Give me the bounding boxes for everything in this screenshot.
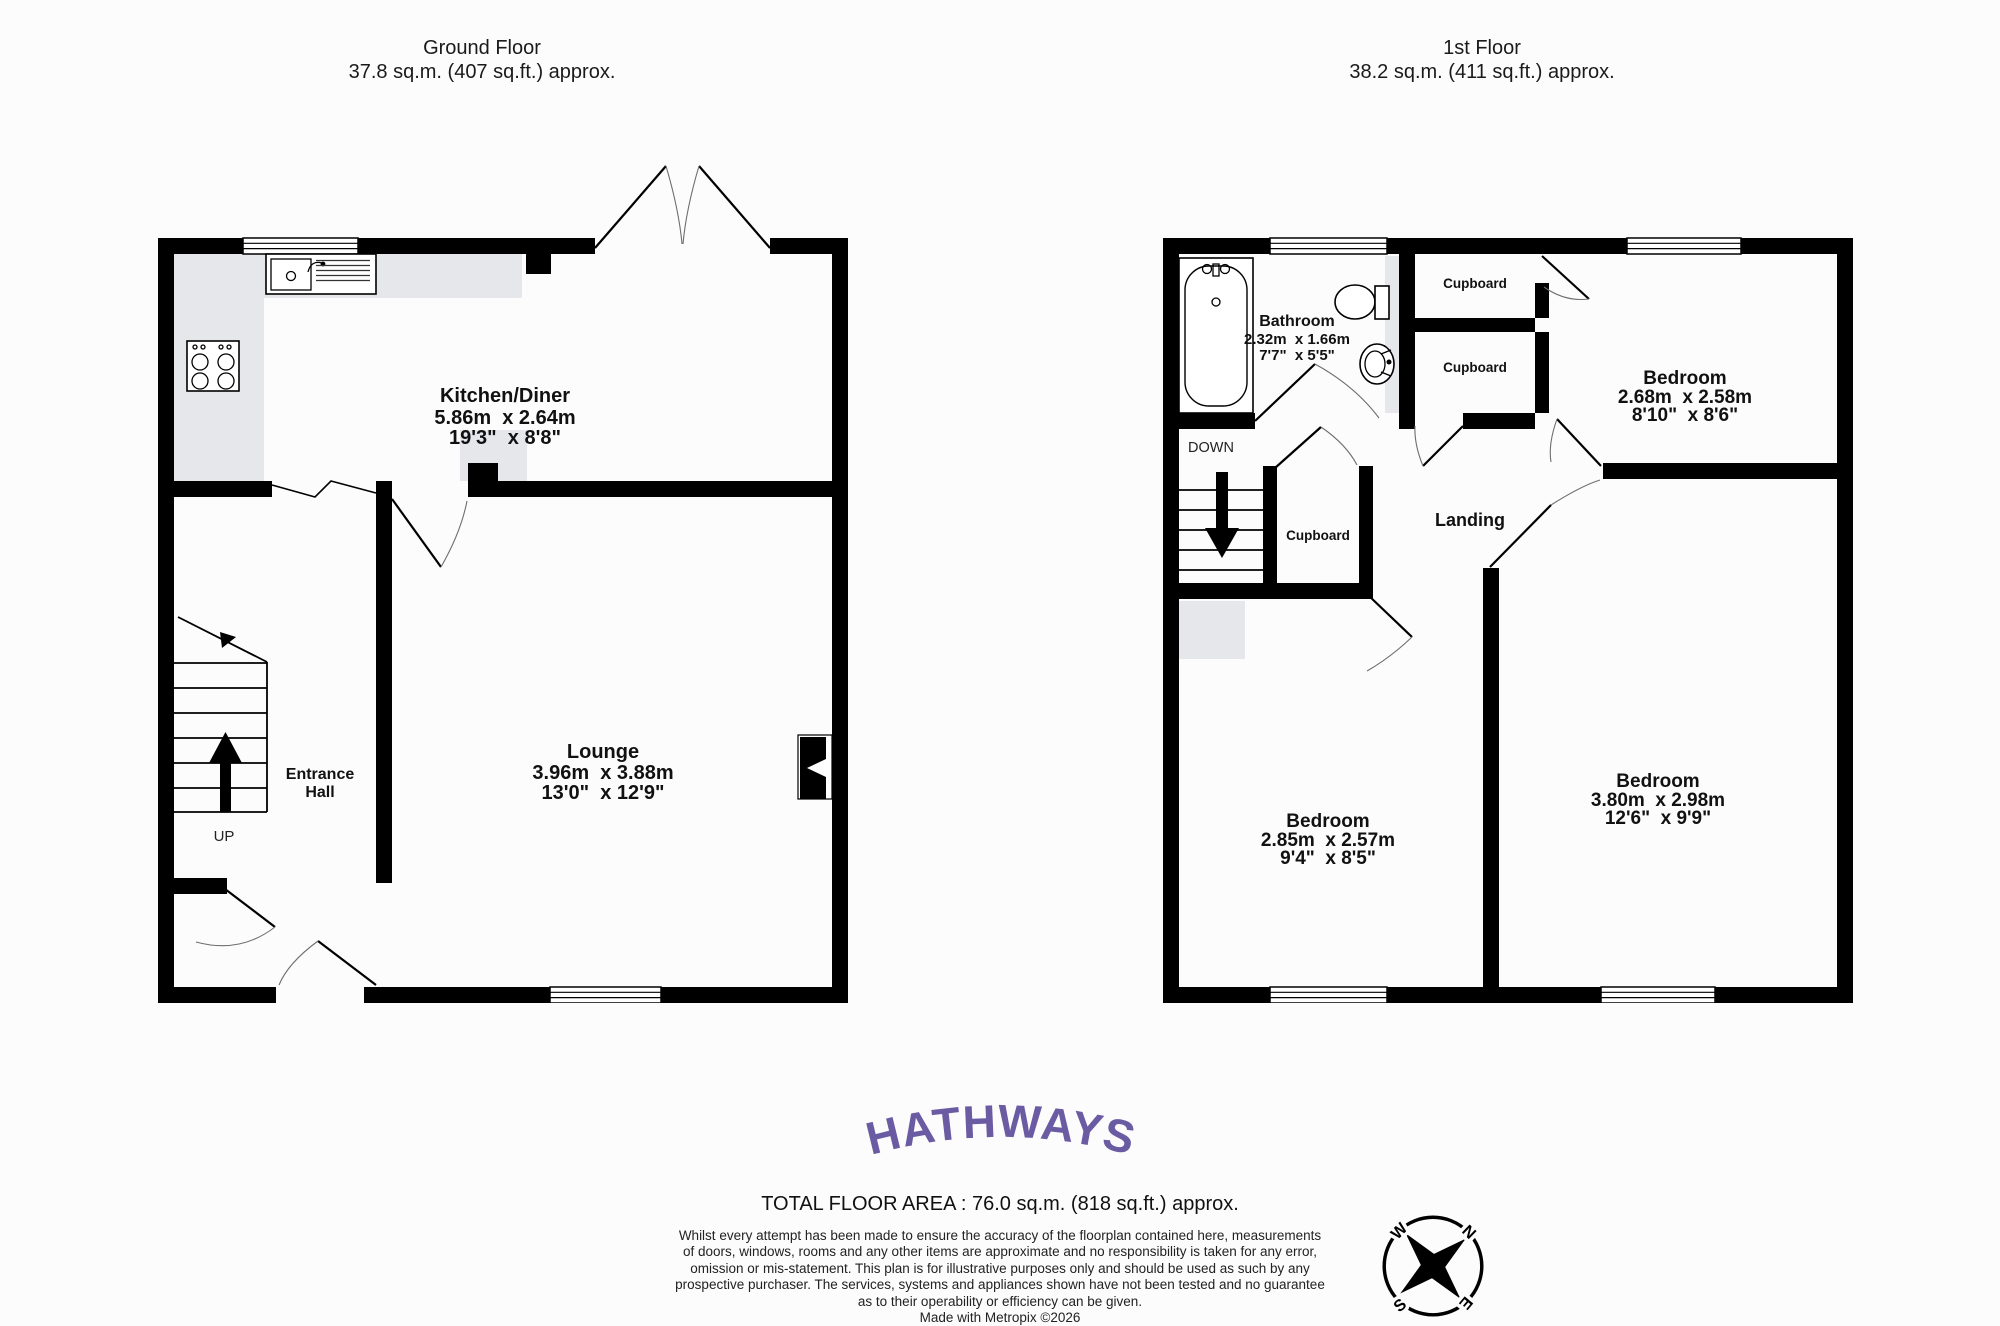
compass-icon: N E S W bbox=[1372, 1202, 1494, 1326]
svg-text:12'6" x 9'9": 12'6" x 9'9" bbox=[1605, 808, 1711, 829]
ground-floor-title: Ground Floor bbox=[262, 36, 702, 60]
total-floor-area: TOTAL FLOOR AREA : 76.0 sq.m. (818 sq.ft… bbox=[600, 1192, 1400, 1216]
svg-text:Lounge: Lounge bbox=[567, 741, 639, 763]
svg-text:Hall: Hall bbox=[305, 784, 334, 801]
svg-text:5.86m x 2.64m: 5.86m x 2.64m bbox=[434, 407, 575, 429]
compass-star bbox=[1400, 1233, 1465, 1298]
bedroom-right-label: Bedroom 3.80m x 2.98m 12'6" x 9'9" bbox=[1591, 771, 1725, 829]
cupboard-label: Cupboard bbox=[1286, 528, 1350, 543]
svg-text:Entrance: Entrance bbox=[286, 766, 355, 783]
bathroom-door bbox=[1255, 364, 1379, 421]
kitchen-sink bbox=[266, 254, 376, 294]
cupboard-label: Cupboard bbox=[1443, 360, 1507, 375]
bedroom-left-label: Bedroom 2.85m x 2.57m 9'4" x 8'5" bbox=[1261, 811, 1395, 869]
window bbox=[550, 987, 661, 1003]
svg-text:HATHWAYS: HATHWAYS bbox=[856, 1076, 1146, 1166]
first-floor-title-block: 1st Floor 38.2 sq.m. (411 sq.ft.) approx… bbox=[1262, 36, 1702, 84]
cupboard-label: Cupboard bbox=[1443, 276, 1507, 291]
bedroom-top-label: Bedroom 2.68m x 2.58m 8'10" x 8'6" bbox=[1618, 368, 1752, 426]
svg-text:Kitchen/Diner: Kitchen/Diner bbox=[440, 385, 570, 407]
lounge-label: Lounge 3.96m x 3.88m 13'0" x 12'9" bbox=[532, 741, 673, 804]
bedroom-door bbox=[1490, 480, 1600, 567]
svg-text:7'7" x 5'5": 7'7" x 5'5" bbox=[1259, 347, 1335, 364]
svg-text:2.32m x 1.66m: 2.32m x 1.66m bbox=[1244, 331, 1350, 348]
disclaimer-line: prospective purchaser. The services, sys… bbox=[560, 1277, 1440, 1293]
first-floor-title: 1st Floor bbox=[1262, 36, 1702, 60]
svg-text:9'4" x 8'5": 9'4" x 8'5" bbox=[1280, 848, 1376, 869]
fireplace-symbol bbox=[798, 735, 832, 799]
sink-basin bbox=[1360, 344, 1394, 384]
up-arrow bbox=[209, 732, 242, 812]
svg-text:Bedroom: Bedroom bbox=[1616, 771, 1699, 792]
disclaimer: Whilst every attempt has been made to en… bbox=[560, 1228, 1440, 1326]
disclaimer-line: of doors, windows, rooms and any other i… bbox=[560, 1244, 1440, 1260]
down-label: DOWN bbox=[1188, 440, 1234, 456]
kitchen-diner-label: Kitchen/Diner 5.86m x 2.64m 19'3" x 8'8" bbox=[434, 385, 575, 449]
svg-text:Bathroom: Bathroom bbox=[1259, 313, 1335, 330]
svg-text:13'0" x 12'9": 13'0" x 12'9" bbox=[541, 782, 664, 804]
ground-floor-plan: Kitchen/Diner 5.86m x 2.64m 19'3" x 8'8"… bbox=[158, 138, 848, 1003]
first-floor-area: 38.2 sq.m. (411 sq.ft.) approx. bbox=[1262, 60, 1702, 84]
first-floor-plan: Bathroom 2.32m x 1.66m 7'7" x 5'5" Cupbo… bbox=[1163, 138, 1853, 1003]
stairs-up bbox=[174, 617, 267, 812]
landing-label: Landing bbox=[1435, 510, 1505, 530]
cupboard-door bbox=[1542, 256, 1589, 300]
floorplan-page: Ground Floor 37.8 sq.m. (407 sq.ft.) app… bbox=[0, 0, 2000, 1326]
disclaimer-line: as to their operability or efficiency ca… bbox=[560, 1294, 1440, 1310]
svg-text:8'10" x 8'6": 8'10" x 8'6" bbox=[1632, 405, 1738, 426]
window bbox=[1270, 987, 1387, 1003]
window bbox=[1270, 238, 1387, 254]
bathroom-label: Bathroom 2.32m x 1.66m 7'7" x 5'5" bbox=[1244, 313, 1350, 364]
svg-text:Bedroom: Bedroom bbox=[1286, 811, 1369, 832]
hathways-logo-text: HATHWAYS bbox=[861, 1095, 1141, 1165]
bedroom-door bbox=[1367, 595, 1412, 671]
hathways-logo: HATHWAYS bbox=[856, 1076, 1146, 1172]
ground-floor-title-block: Ground Floor 37.8 sq.m. (407 sq.ft.) app… bbox=[262, 36, 702, 84]
ground-floor-area: 37.8 sq.m. (407 sq.ft.) approx. bbox=[262, 60, 702, 84]
opening-symbol bbox=[272, 481, 376, 497]
up-label: UP bbox=[214, 828, 235, 845]
disclaimer-line: omission or mis-statement. This plan is … bbox=[560, 1261, 1440, 1277]
toilet bbox=[1335, 285, 1389, 319]
french-doors bbox=[595, 166, 770, 248]
window bbox=[1601, 987, 1715, 1003]
front-door bbox=[279, 941, 376, 985]
window bbox=[1627, 238, 1741, 254]
cupboard-door bbox=[1415, 426, 1463, 466]
metropix-credit: Made with Metropix ©2026 bbox=[560, 1310, 1440, 1326]
svg-text:Bedroom: Bedroom bbox=[1643, 368, 1726, 389]
bedroom-door bbox=[1550, 419, 1601, 466]
kitchen-lounge-door bbox=[392, 499, 467, 567]
cupboard-door bbox=[1275, 427, 1357, 468]
interior-walls bbox=[174, 463, 832, 894]
bathtub bbox=[1179, 258, 1253, 413]
porch-door bbox=[196, 889, 275, 946]
stove-hob bbox=[187, 341, 239, 391]
disclaimer-line: Whilst every attempt has been made to en… bbox=[560, 1228, 1440, 1244]
svg-text:3.96m x 3.88m: 3.96m x 3.88m bbox=[532, 762, 673, 784]
entrance-hall-label: Entrance Hall bbox=[286, 766, 355, 801]
down-arrow bbox=[1205, 472, 1239, 558]
svg-text:19'3" x 8'8": 19'3" x 8'8" bbox=[449, 427, 561, 449]
window bbox=[243, 238, 358, 254]
stairs-down bbox=[1179, 472, 1263, 570]
